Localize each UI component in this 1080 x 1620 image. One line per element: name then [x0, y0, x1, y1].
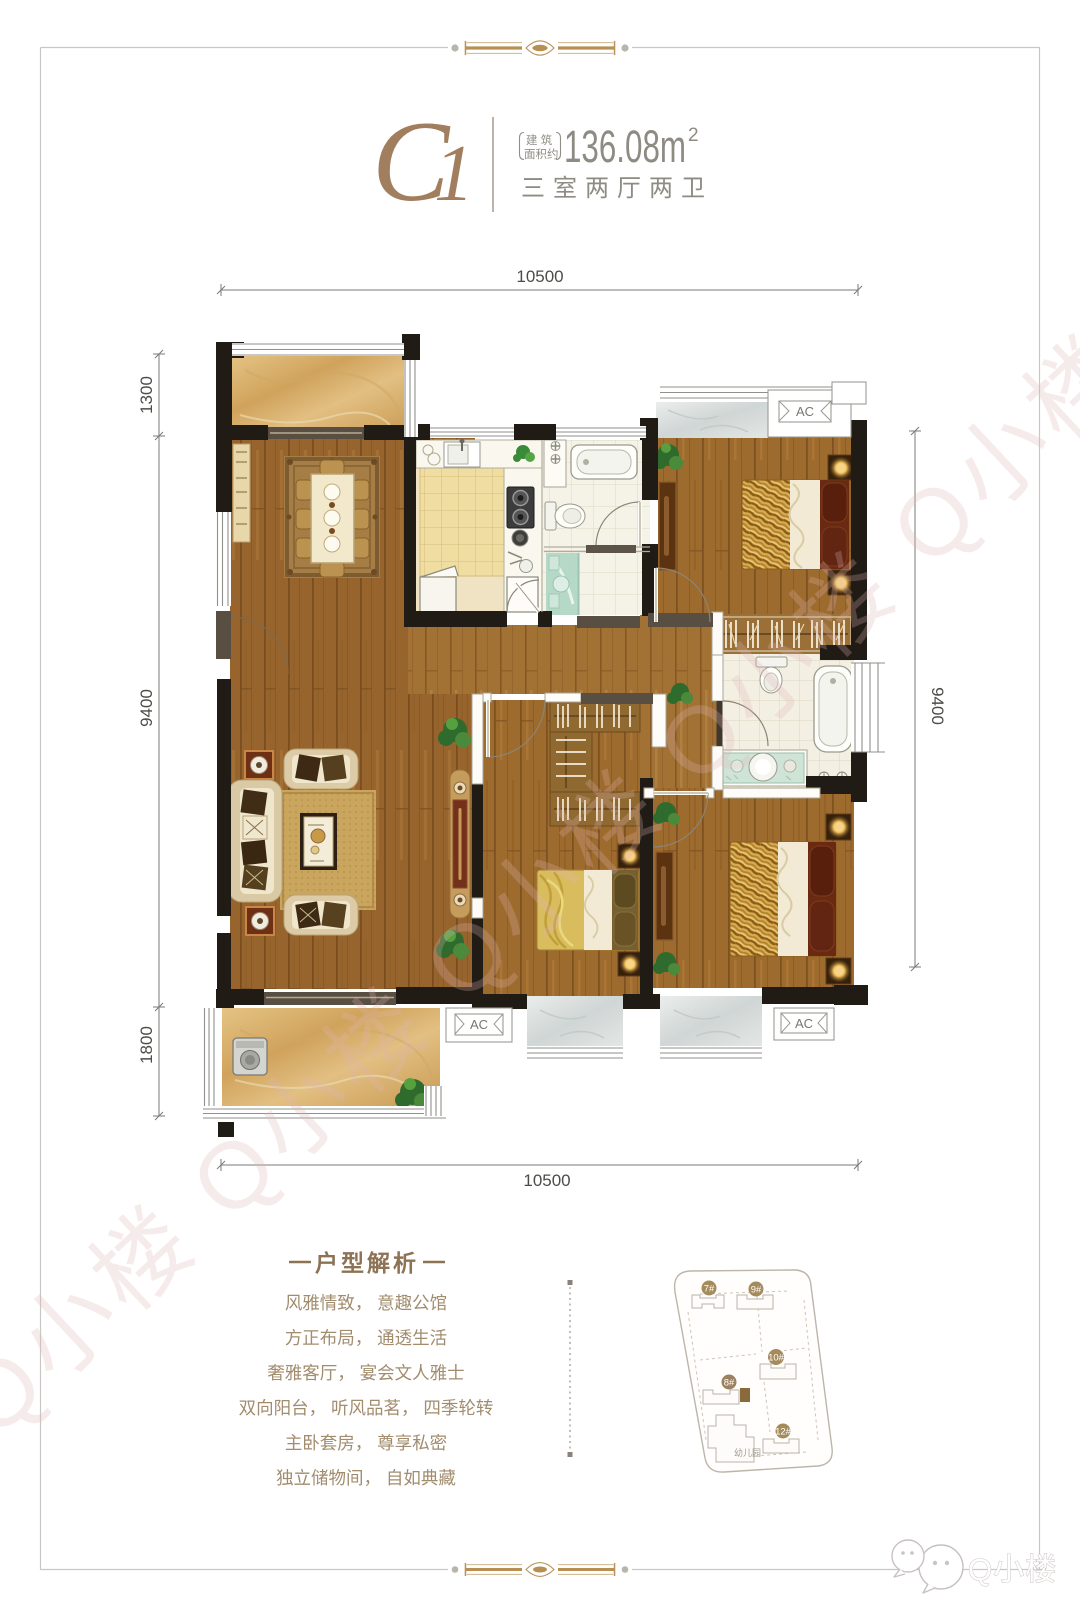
svg-text:136.08m: 136.08m — [564, 121, 686, 172]
svg-text:面积约: 面积约 — [524, 147, 559, 161]
svg-text:1: 1 — [434, 130, 474, 218]
svg-text:1300: 1300 — [137, 376, 156, 414]
svg-text:1800: 1800 — [137, 1026, 156, 1064]
svg-text:AC: AC — [795, 1016, 813, 1031]
svg-text:Q小楼: Q小楼 — [968, 1552, 1057, 1587]
svg-text:7#: 7# — [704, 1284, 715, 1295]
svg-text:9400: 9400 — [928, 687, 947, 725]
svg-text:12#: 12# — [775, 1427, 792, 1438]
svg-text:AC: AC — [796, 404, 814, 419]
svg-text:主卧套房， 尊享私密: 主卧套房， 尊享私密 — [285, 1433, 447, 1453]
svg-text:9#: 9# — [751, 1285, 762, 1296]
svg-text:幼儿园: 幼儿园 — [734, 1447, 761, 1458]
svg-text:风雅情致， 意趣公馆: 风雅情致， 意趣公馆 — [285, 1293, 447, 1313]
svg-text:奢雅客厅， 宴会文人雅士: 奢雅客厅， 宴会文人雅士 — [267, 1363, 464, 1383]
svg-text:10500: 10500 — [516, 267, 563, 286]
svg-text:独立储物间， 自如典藏: 独立储物间， 自如典藏 — [276, 1468, 456, 1488]
svg-text:双向阳台， 听风品茗， 四季轮转: 双向阳台， 听风品茗， 四季轮转 — [239, 1398, 494, 1418]
svg-text:方正布局， 通透生活: 方正布局， 通透生活 — [285, 1328, 447, 1348]
svg-text:建 筑: 建 筑 — [526, 133, 553, 147]
svg-text:2: 2 — [688, 125, 699, 146]
svg-text:9400: 9400 — [137, 689, 156, 727]
svg-text:8#: 8# — [724, 1378, 735, 1389]
svg-text:户型解析: 户型解析 — [315, 1250, 419, 1276]
svg-text:三室两厅两卫: 三室两厅两卫 — [521, 175, 713, 202]
svg-text:10500: 10500 — [523, 1171, 570, 1190]
svg-text:10#: 10# — [768, 1353, 785, 1364]
